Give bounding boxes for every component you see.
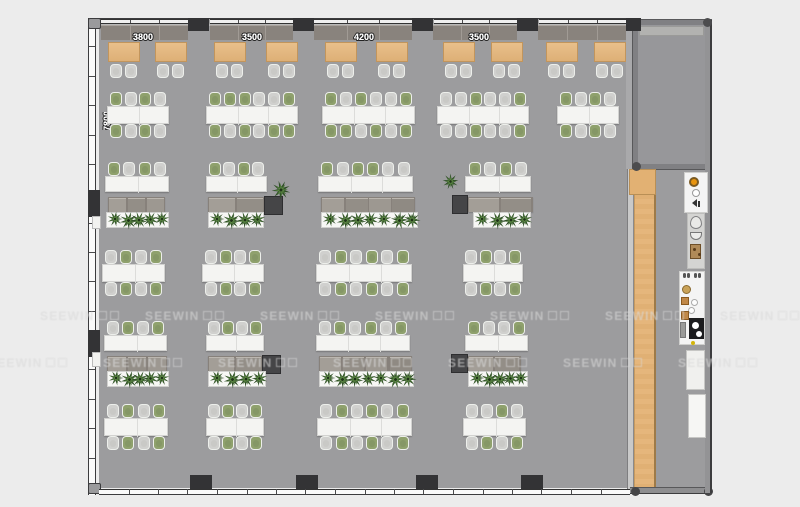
svg-text:3800: 3800 <box>133 32 153 42</box>
svg-text:3500: 3500 <box>242 32 262 42</box>
svg-text:4200: 4200 <box>354 32 374 42</box>
svg-text:3500: 3500 <box>469 32 489 42</box>
